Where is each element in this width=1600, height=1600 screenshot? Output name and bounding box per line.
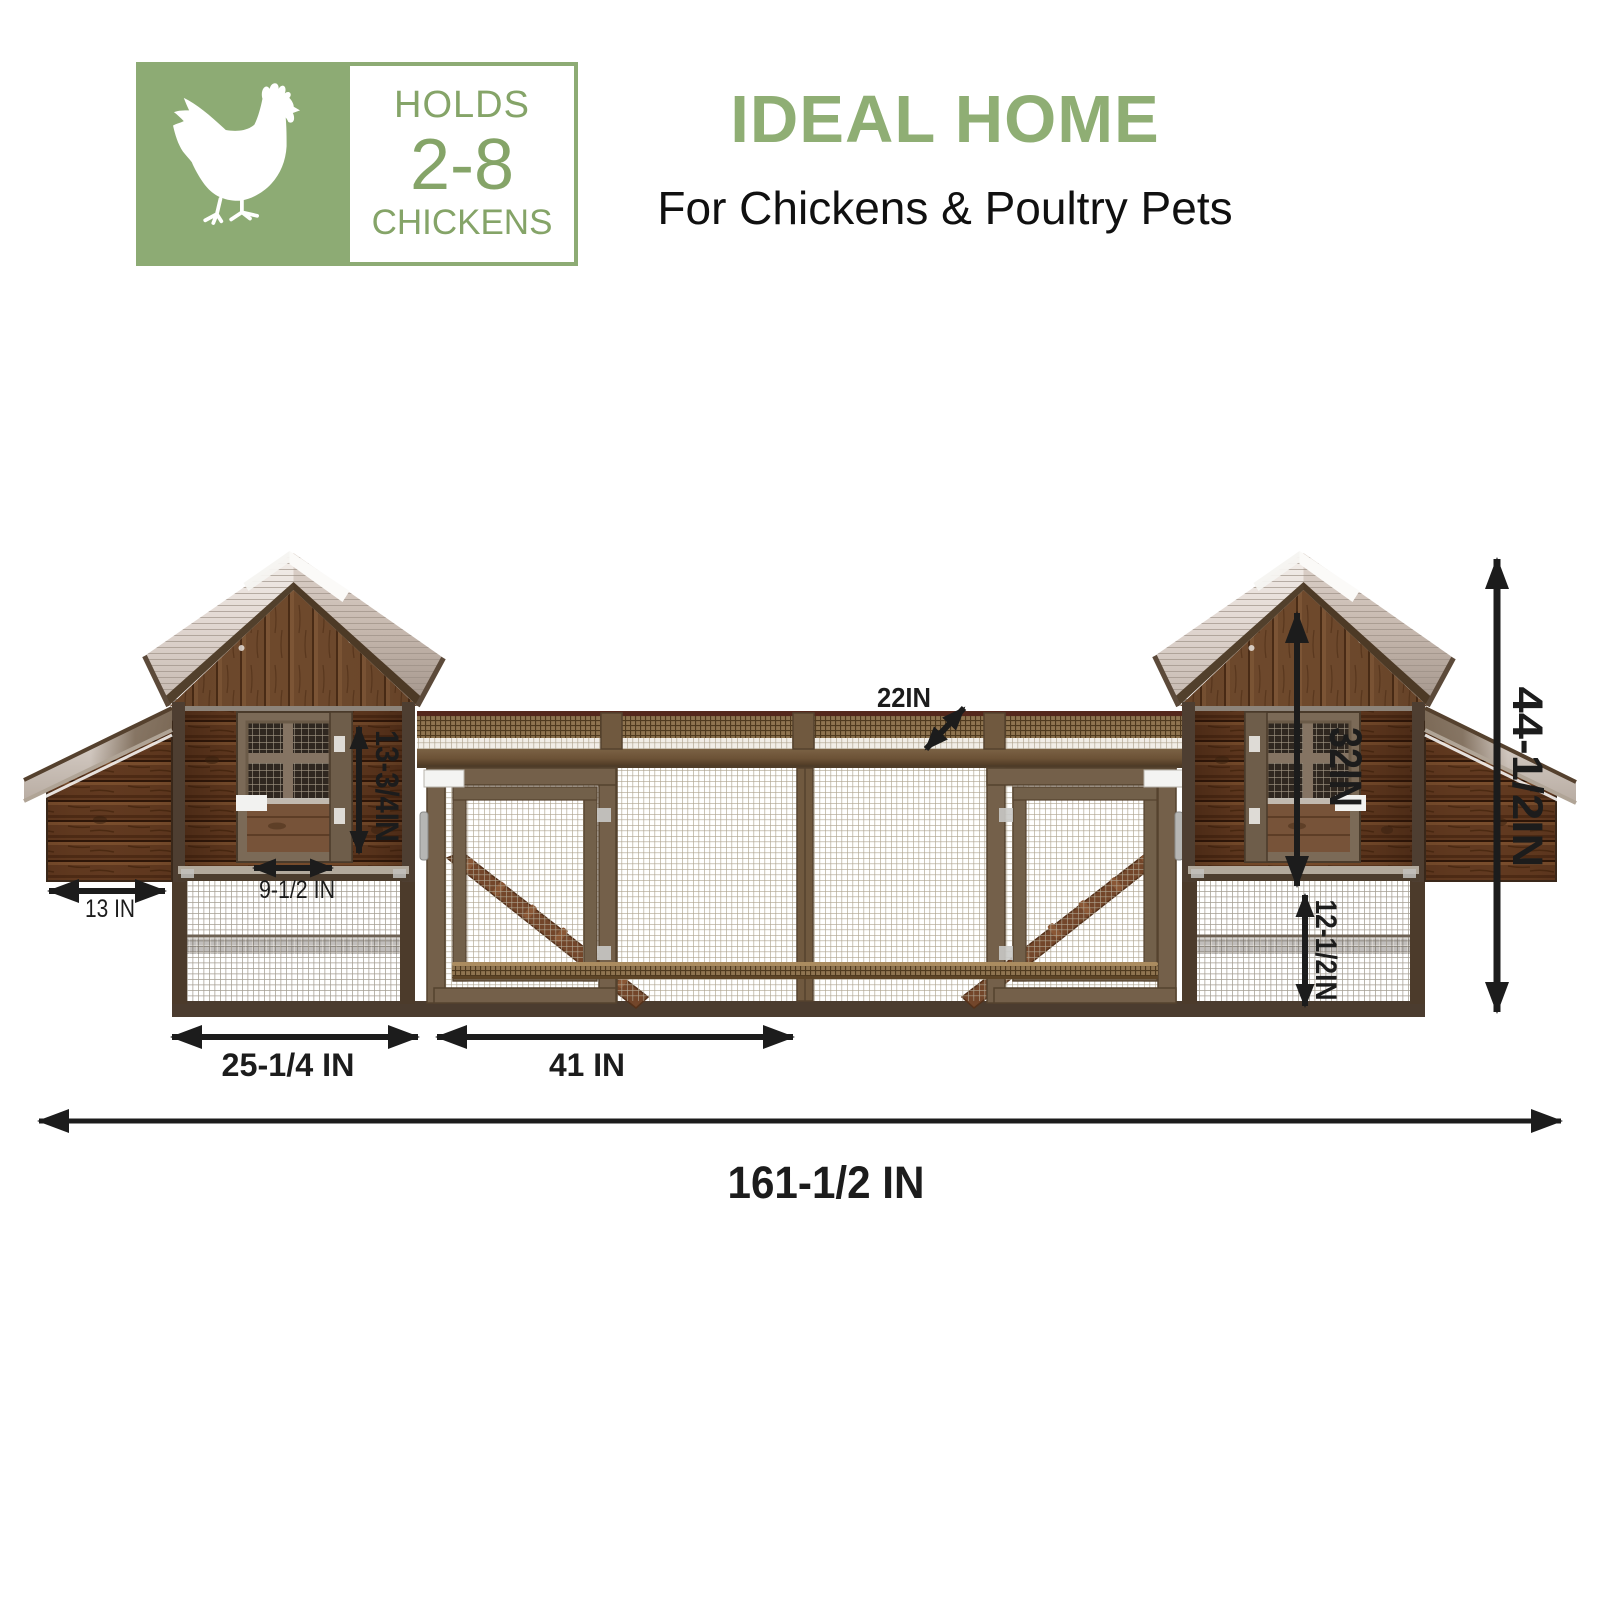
svg-text:22IN: 22IN — [877, 682, 931, 713]
svg-text:9-1/2 IN: 9-1/2 IN — [259, 876, 335, 904]
svg-text:41 IN: 41 IN — [549, 1047, 625, 1083]
svg-text:32IN: 32IN — [1320, 727, 1371, 807]
svg-text:13-3/4IN: 13-3/4IN — [369, 730, 405, 842]
svg-text:161-1/2 IN: 161-1/2 IN — [728, 1157, 925, 1208]
svg-text:13 IN: 13 IN — [85, 895, 135, 923]
svg-text:44-1/2IN: 44-1/2IN — [1503, 687, 1551, 868]
svg-text:25-1/4 IN: 25-1/4 IN — [222, 1047, 355, 1083]
svg-text:12-1/2IN: 12-1/2IN — [1309, 900, 1342, 1001]
